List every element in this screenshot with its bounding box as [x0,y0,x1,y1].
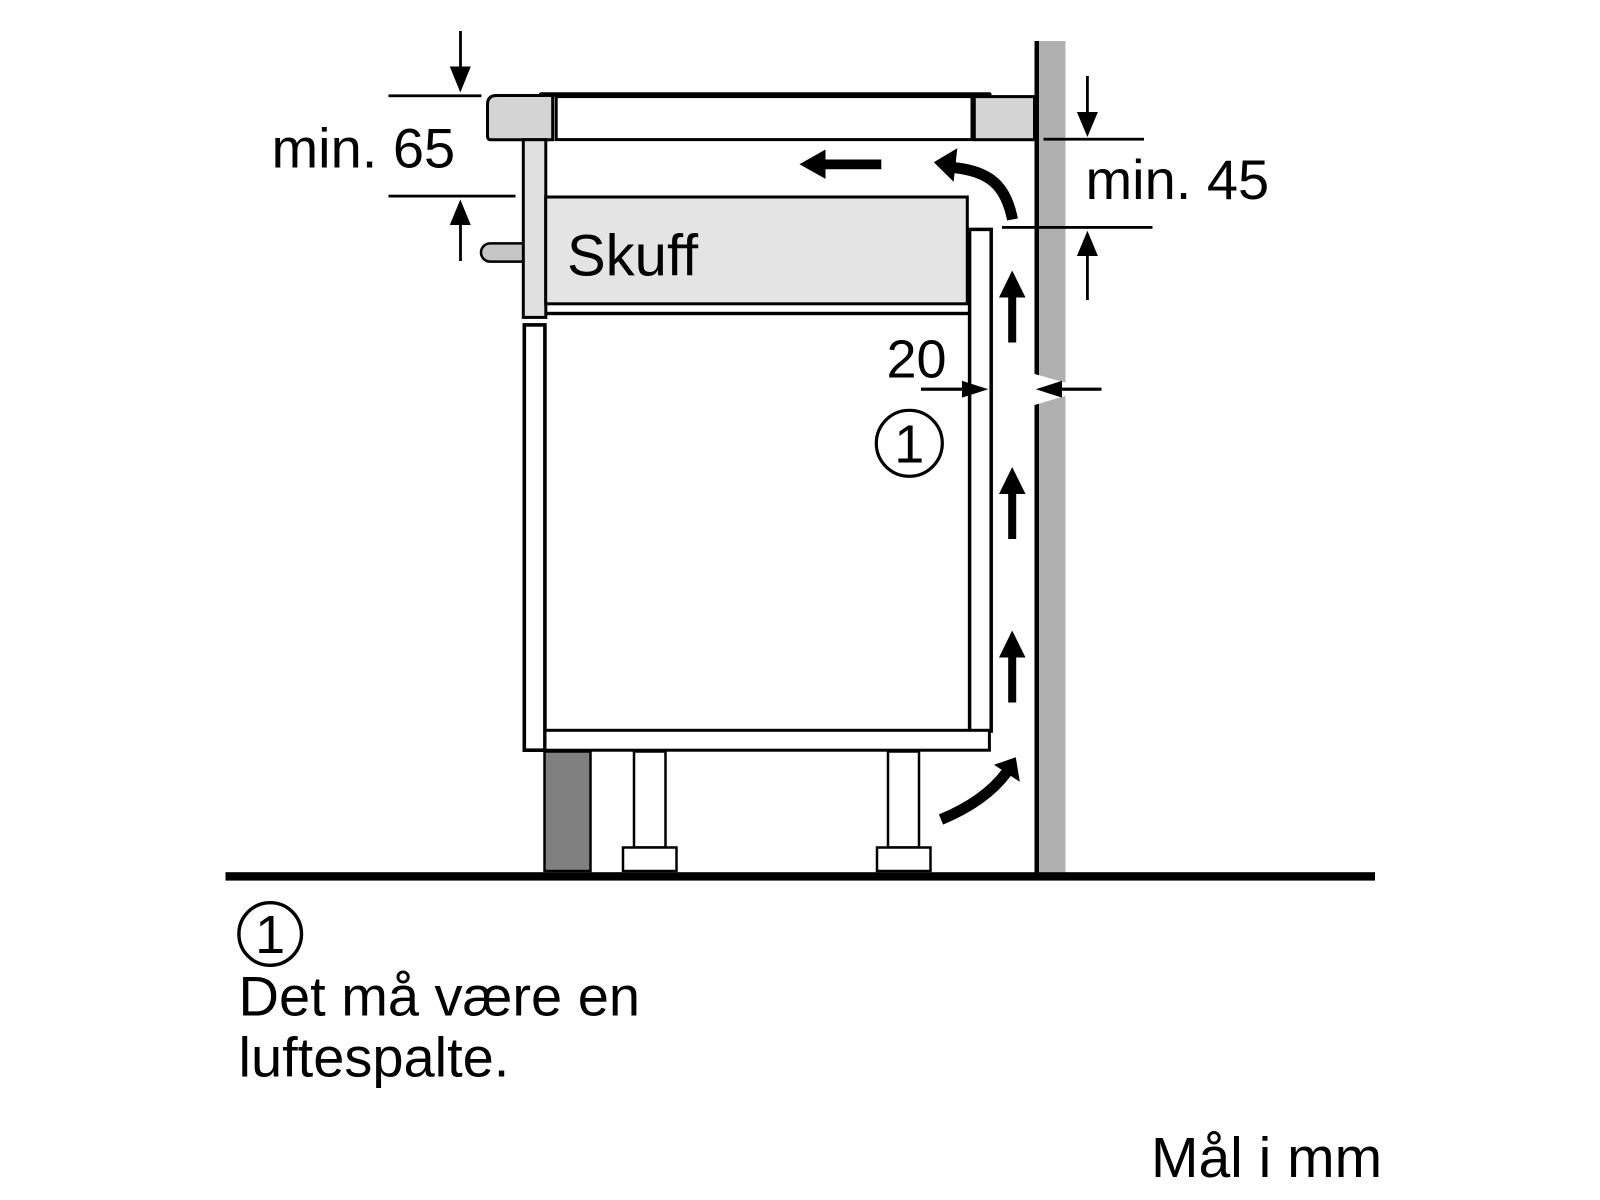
svg-text:luftespalte.: luftespalte. [239,1026,510,1089]
svg-text:min. 65: min. 65 [272,117,456,180]
svg-text:1: 1 [894,415,924,475]
svg-text:20: 20 [887,330,947,390]
svg-text:Skuff: Skuff [567,224,699,289]
svg-text:Mål i mm: Mål i mm [1151,1126,1382,1190]
svg-text:min. 45: min. 45 [1086,148,1270,211]
svg-text:1: 1 [255,905,285,965]
svg-text:Det må være en: Det må være en [239,965,641,1028]
